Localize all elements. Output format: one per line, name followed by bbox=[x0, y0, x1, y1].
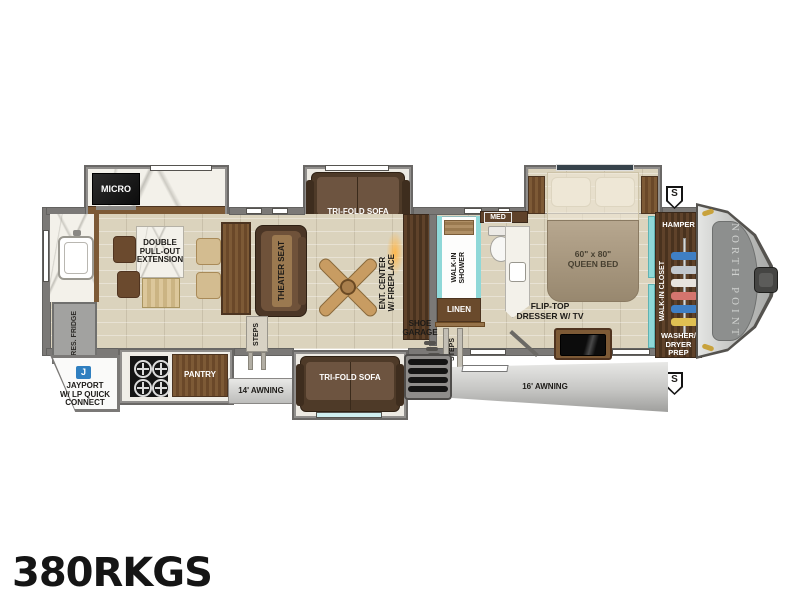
bath-handrail bbox=[435, 322, 485, 327]
sofa-bottom-armrest-left bbox=[296, 364, 304, 406]
queen-bed-label: 60" x 80" QUEEN BED bbox=[568, 250, 619, 269]
awning-14-label: 14' AWNING bbox=[238, 387, 284, 396]
awning-16-label: 16' AWNING bbox=[522, 383, 568, 392]
dinette-table: DOUBLE PULL-OUT EXTENSION bbox=[136, 226, 184, 278]
sofa-slide-window bbox=[316, 412, 382, 418]
closet-clothes-1 bbox=[671, 252, 698, 260]
entry-step-2 bbox=[408, 368, 448, 374]
theater-seat-band: THEATER SEAT bbox=[272, 235, 292, 307]
sink-counter-edge bbox=[94, 214, 99, 302]
floorplan-canvas: MICRO TRI-FOLD SOFA RES. FRIDGE DOUBLE P… bbox=[0, 0, 800, 600]
dresser-tv bbox=[560, 334, 606, 356]
dinette-extension bbox=[142, 278, 180, 308]
sofa-bottom-seam bbox=[350, 362, 351, 410]
top-wall-window-1 bbox=[246, 208, 262, 214]
top-wall-2 bbox=[229, 207, 305, 215]
closet-clothes-5 bbox=[671, 305, 698, 313]
ent-center-label: ENT. CENTER W/ FIREPLACE bbox=[379, 254, 397, 311]
dinette-chair-4 bbox=[196, 272, 221, 299]
shower-bench bbox=[444, 220, 474, 235]
theater-seat-footrest bbox=[298, 237, 306, 305]
bottom-wall-window-1 bbox=[470, 349, 506, 355]
solar-marker-bottom-label: S bbox=[671, 374, 678, 385]
theater-seat-label: THEATER SEAT bbox=[278, 241, 287, 301]
living-steps: STEPS bbox=[246, 316, 268, 352]
kitchen-hutch bbox=[221, 222, 251, 315]
dresser-label: FLIP-TOP DRESSER W/ TV bbox=[516, 302, 583, 321]
hitch-pin-inner bbox=[759, 273, 773, 287]
closet-teal-counter-top bbox=[648, 216, 655, 278]
entry-step-4 bbox=[408, 386, 448, 392]
closet-clothes-3 bbox=[671, 279, 698, 287]
residential-fridge: RES. FRIDGE bbox=[52, 302, 97, 364]
ceiling-fan-hub bbox=[340, 279, 356, 295]
shower-label: WALK-IN SHOWER bbox=[451, 252, 467, 284]
model-name: 380RKGS bbox=[12, 550, 212, 596]
awning-14-bar: 14' AWNING bbox=[228, 378, 294, 404]
shoe-icon-1 bbox=[424, 341, 436, 345]
burner-2 bbox=[152, 360, 170, 378]
skirt-window bbox=[461, 365, 508, 372]
living-steps-label: STEPS bbox=[253, 323, 261, 346]
hamper-label: HAMPER bbox=[662, 221, 695, 229]
nightstand-left bbox=[528, 176, 545, 214]
fridge-label: RES. FRIDGE bbox=[71, 311, 79, 356]
solar-marker-top-label: S bbox=[671, 188, 678, 199]
closet-clothes-6 bbox=[671, 318, 698, 326]
jayport-chip-label: J bbox=[81, 367, 86, 377]
bed-slide-window bbox=[556, 164, 634, 171]
kitchen-sink-basin bbox=[64, 242, 88, 274]
dinette-chair-3 bbox=[196, 238, 221, 265]
linen-label: LINEN bbox=[447, 306, 471, 315]
nightstand-right bbox=[641, 176, 658, 214]
jayport-label: JAYPORT W/ LP QUICK CONNECT bbox=[60, 382, 110, 409]
micro-shelf bbox=[96, 206, 136, 210]
burner-3 bbox=[134, 379, 152, 397]
sofa-bottom-label: TRI-FOLD SOFA bbox=[319, 374, 380, 383]
shower-teal-right bbox=[476, 216, 481, 300]
washer-dryer-label: WASHER/ DRYER PREP bbox=[661, 332, 696, 357]
closet-teal-counter-bottom bbox=[648, 284, 655, 348]
pantry: PANTRY bbox=[172, 354, 228, 397]
cooktop bbox=[128, 354, 170, 399]
living-steps-rail-2 bbox=[261, 352, 266, 370]
closet-clothes-2 bbox=[671, 266, 698, 274]
micro-label: MICRO bbox=[101, 184, 131, 194]
entry-step-3 bbox=[408, 377, 448, 383]
bottom-wall-window-2 bbox=[612, 349, 650, 355]
closet-clothes-4 bbox=[671, 292, 698, 300]
top-wall-window-2 bbox=[272, 208, 288, 214]
vanity-sink bbox=[509, 262, 526, 282]
shoe-garage-label: SHOE GARAGE bbox=[402, 320, 437, 338]
microwave: MICRO bbox=[92, 173, 140, 205]
sofa-top-slide-window bbox=[325, 165, 389, 171]
closet-label: WALK-IN CLOSET bbox=[659, 261, 667, 321]
med-label: MED bbox=[490, 214, 506, 222]
shower-teal-left bbox=[437, 216, 442, 300]
sofa-bottom-armrest-right bbox=[396, 364, 404, 406]
entry-step-1 bbox=[408, 359, 448, 365]
north-point-brand: NORTH POINT bbox=[729, 223, 741, 339]
pantry-label: PANTRY bbox=[184, 371, 216, 380]
jayport-chip: J bbox=[76, 366, 91, 379]
kitchen-slide-window bbox=[150, 165, 212, 171]
burner-1 bbox=[134, 360, 152, 378]
queen-bed-sheet bbox=[547, 172, 639, 222]
dinette-chair-2 bbox=[117, 271, 140, 298]
linen-closet: LINEN bbox=[437, 298, 481, 322]
kitchen-faucet bbox=[73, 230, 81, 236]
shoe-icon-2 bbox=[426, 347, 438, 351]
med-cabinet: MED bbox=[484, 212, 512, 223]
burner-4 bbox=[152, 379, 170, 397]
dinette-chair-1 bbox=[113, 236, 136, 263]
rear-window bbox=[43, 230, 49, 282]
living-steps-rail-1 bbox=[248, 352, 253, 370]
dinette-label: DOUBLE PULL-OUT EXTENSION bbox=[137, 239, 183, 266]
